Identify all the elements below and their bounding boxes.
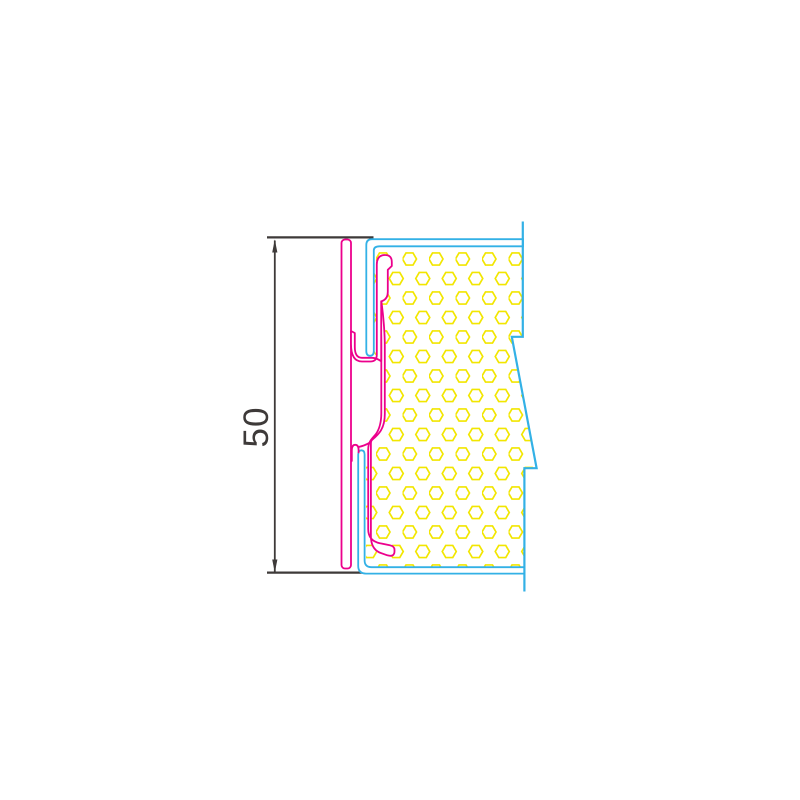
clip-fin bbox=[342, 240, 352, 569]
drawing-canvas: 50 bbox=[0, 0, 800, 800]
dimension-arrow-up bbox=[272, 240, 277, 253]
dimension-arrow-down bbox=[272, 560, 277, 573]
dimension-label: 50 bbox=[237, 407, 276, 448]
panel-joint-drawing: 50 bbox=[0, 0, 800, 800]
